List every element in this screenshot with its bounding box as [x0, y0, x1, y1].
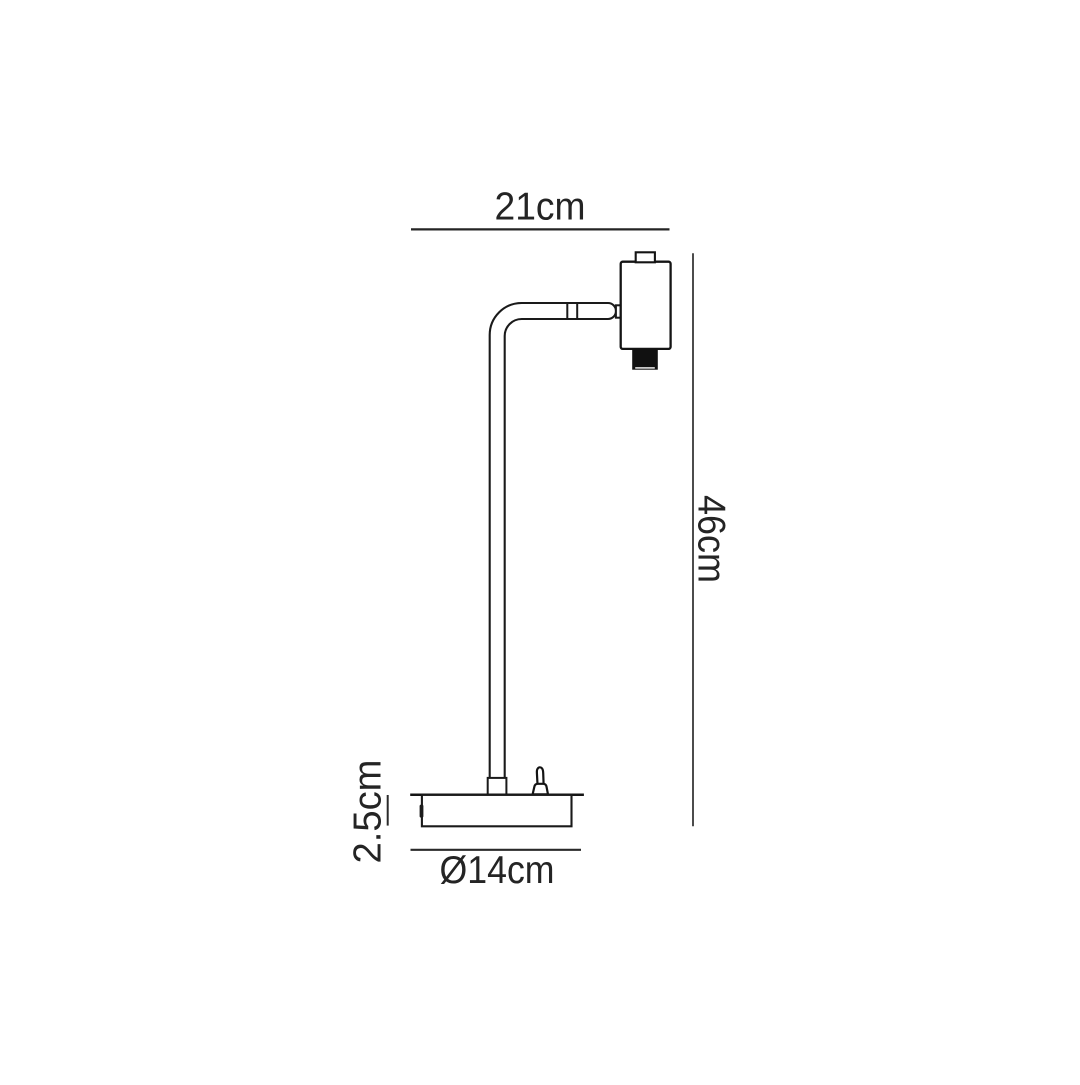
- svg-text:46cm: 46cm: [690, 495, 733, 583]
- svg-text:21cm: 21cm: [495, 186, 586, 229]
- svg-text:Ø14cm: Ø14cm: [440, 849, 555, 892]
- svg-text:2.5cm: 2.5cm: [347, 760, 390, 864]
